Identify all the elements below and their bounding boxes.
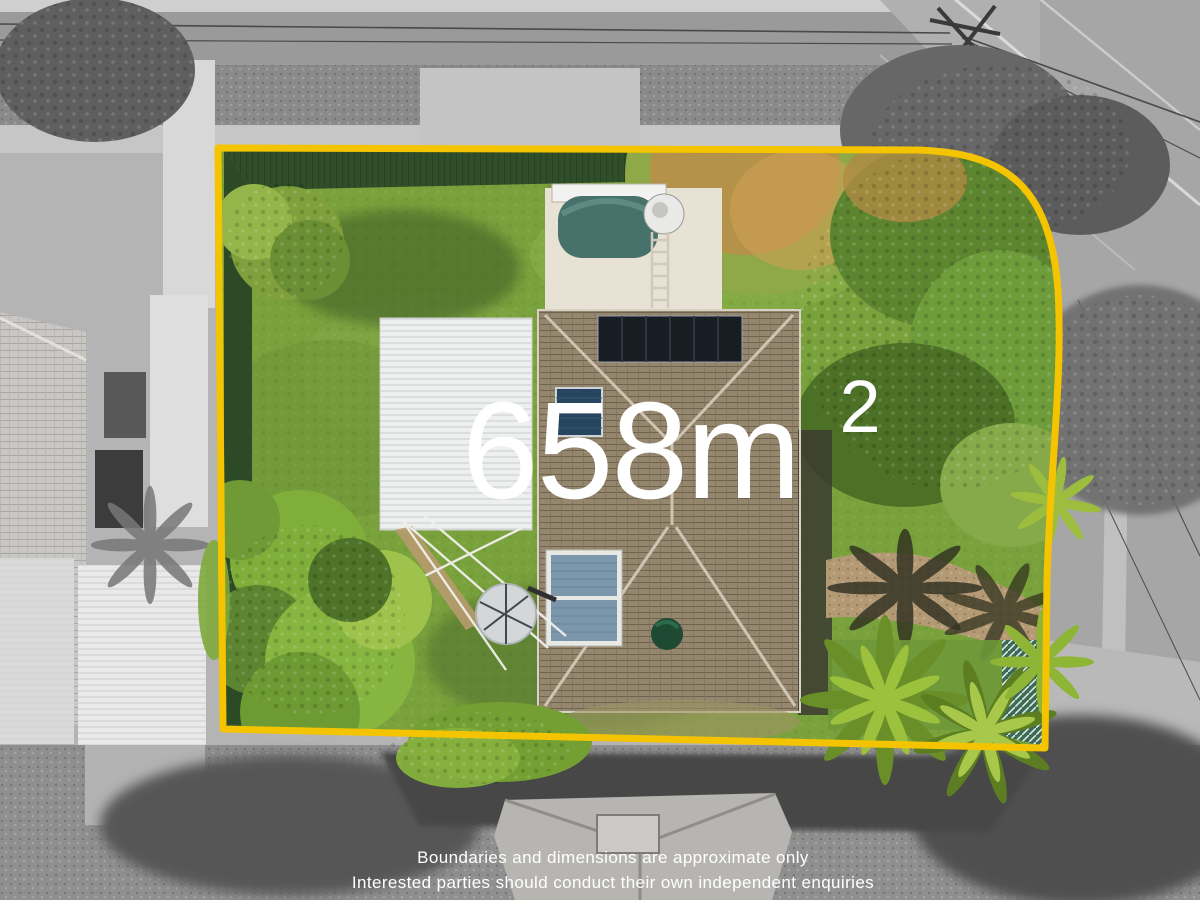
area-superscript: 2 bbox=[840, 365, 879, 448]
area-label: 658m 2 bbox=[462, 365, 879, 528]
tree-texture bbox=[227, 182, 343, 298]
concrete-crossover bbox=[420, 68, 640, 152]
hw-glass bbox=[551, 600, 617, 641]
disclaimer-line-2: Interested parties should conduct their … bbox=[352, 873, 874, 892]
hw-glass bbox=[551, 555, 617, 596]
satellite-dish-center bbox=[652, 202, 668, 218]
palm-tree bbox=[990, 610, 1094, 714]
aerial-photo: 658m 2 Boundaries and dimensions are app… bbox=[0, 0, 1200, 900]
gray-palm bbox=[91, 486, 209, 604]
white-roof-texture bbox=[0, 558, 74, 744]
garage-roof-texture bbox=[78, 565, 206, 747]
tree-texture bbox=[215, 525, 405, 715]
property-aerial-screenshot: 658m 2 Boundaries and dimensions are app… bbox=[0, 0, 1200, 900]
courtyard bbox=[150, 295, 208, 527]
tree-spill-texture bbox=[390, 712, 570, 784]
disclaimer-line-1: Boundaries and dimensions are approximat… bbox=[417, 848, 809, 867]
area-value: 658m bbox=[462, 374, 799, 528]
dark-structure bbox=[104, 372, 146, 438]
solar-panel-array bbox=[598, 316, 742, 362]
gray-tree-texture bbox=[0, 0, 195, 142]
